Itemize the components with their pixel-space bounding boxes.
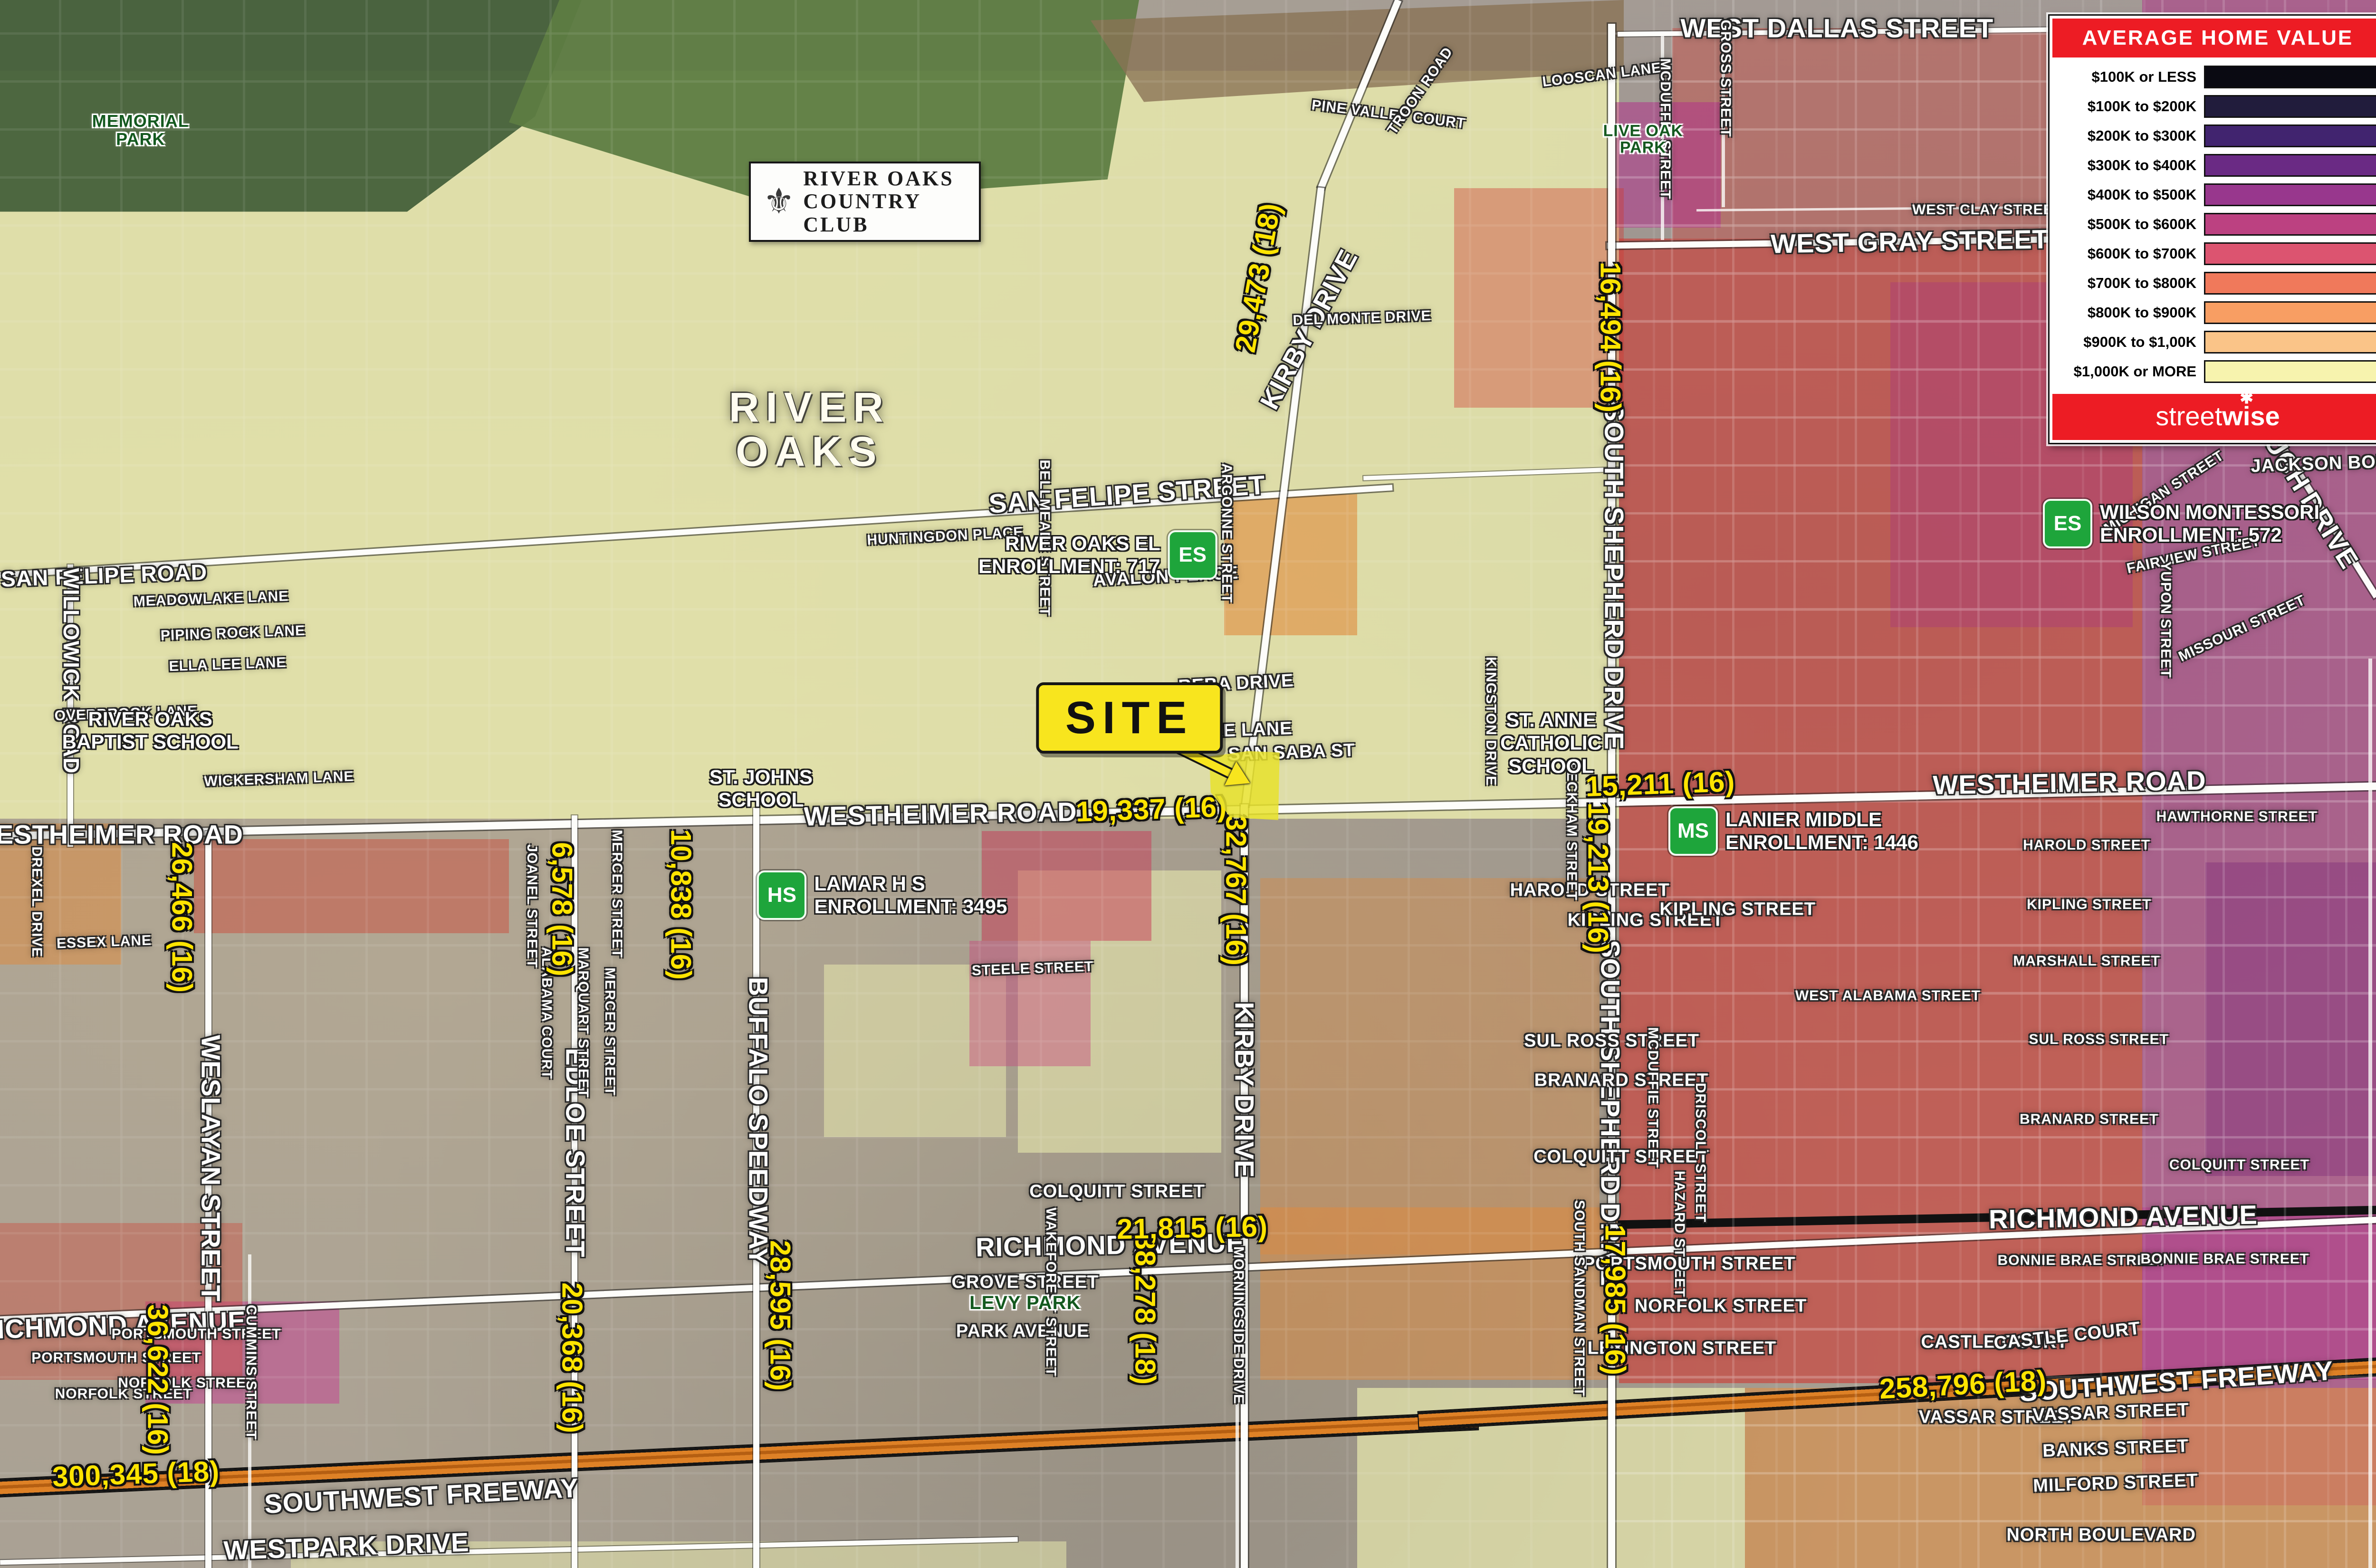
- street-label: HAWTHORNE STREET: [2156, 809, 2318, 825]
- street-label: HAZARD STREET: [1671, 1171, 1687, 1297]
- school-text: RIVER OAKS ELENROLLMENT: 717: [978, 532, 1160, 578]
- school-label: RIVER OAKS ELENROLLMENT: 717ES: [978, 530, 1217, 580]
- street-label: WEST GRAY STREET: [1771, 224, 2049, 259]
- legend-row: $100K to $200K: [2054, 92, 2376, 121]
- traffic-count: 19,337 (16): [1075, 790, 1227, 828]
- region-pink-south-richmond-east: [2142, 1207, 2376, 1380]
- street-label: NORFOLK STREET: [1635, 1296, 1807, 1316]
- legend-row-swatch: [2204, 360, 2376, 383]
- school-text: LAMAR H SENROLLMENT: 3495: [814, 872, 1007, 918]
- legend-row-swatch: [2204, 242, 2376, 265]
- traffic-count: 16,494 (16): [1594, 262, 1627, 413]
- school-label: ESWILSON MONTESSORIENROLLMENT: 572: [2043, 499, 2319, 548]
- street-label: NORTH BOULEVARD: [2006, 1525, 2196, 1545]
- legend-row: $900K to $1,00K: [2054, 327, 2376, 357]
- legend-row: $600K to $700K: [2054, 239, 2376, 268]
- street-label: WEST ALABAMA STREET: [1795, 988, 1981, 1004]
- legend-row-swatch: [2204, 95, 2376, 118]
- school-label: ST. ANNECATHOLICSCHOOL: [1500, 709, 1602, 778]
- traffic-count: 28,595 (16): [764, 1240, 797, 1391]
- legend-row: $200K to $300K: [2054, 121, 2376, 151]
- street-label: PECKHAM STREET: [1563, 762, 1580, 900]
- legend-row-label: $1,000K or MORE: [2054, 363, 2204, 380]
- street-label: SUL ROSS STREET: [1524, 1031, 1699, 1052]
- school-text: ST. JOHNSSCHOOL: [709, 766, 813, 812]
- legend-row-label: $300K to $400K: [2054, 157, 2204, 174]
- legend-row-swatch: [2204, 183, 2376, 206]
- legend-row-swatch: [2204, 154, 2376, 177]
- street-label: MORNINGSIDE DRIVE: [1230, 1246, 1246, 1404]
- street-label: COLQUITT STREET: [2169, 1157, 2309, 1173]
- street-label: BRANARD STREET: [1534, 1070, 1709, 1090]
- school-text: RIVER OAKSBAPTIST SCHOOL: [62, 708, 239, 754]
- region-orange-avalon: [1224, 494, 1358, 635]
- legend-title: AVERAGE HOME VALUE: [2052, 19, 2376, 57]
- school-badge-es-icon: ES: [1168, 530, 1217, 580]
- street-label: WESTHEIMER ROAD: [1933, 765, 2206, 800]
- area-label-river-oaks: RIVEROAKS: [729, 386, 890, 474]
- region-orange-kirby-shepherd: [1260, 878, 1600, 1254]
- school-badge-ms-icon: MS: [1668, 806, 1718, 856]
- traffic-count: 15,211 (16): [1585, 765, 1735, 803]
- park-label-memorial-park: MEMORIALPARK: [92, 112, 189, 148]
- region-red-left-small: [194, 839, 509, 933]
- legend-row-swatch: [2204, 66, 2376, 88]
- school-label: MSLANIER MIDDLEENROLLMENT: 1446: [1668, 806, 1918, 856]
- traffic-count: 21,815 (16): [1117, 1210, 1268, 1246]
- site-callout: SITE: [1036, 682, 1223, 754]
- legend-row: $700K to $800K: [2054, 268, 2376, 298]
- legend-row-label: $600K to $700K: [2054, 245, 2204, 262]
- streetwise-map-page: WEST DALLAS STREETWEST GRAY STREETWEST C…: [0, 0, 2376, 1568]
- street-label: DRISCOLL STREET: [1692, 1082, 1708, 1222]
- street-label: MARSHALL STREET: [2013, 953, 2160, 969]
- legend-row-label: $800K to $900K: [2054, 304, 2204, 321]
- street-label: SOUTH SANDMAN STREET: [1571, 1200, 1587, 1396]
- street-label: PARK AVENUE: [956, 1321, 1090, 1341]
- legend-row: $400K to $500K: [2054, 180, 2376, 210]
- street-label: WESTHEIMER ROAD: [804, 796, 1077, 832]
- legend-row-label: $100K to $200K: [2054, 98, 2204, 115]
- legend-row: $100K or LESS: [2054, 62, 2376, 92]
- school-badge-hs-icon: HS: [757, 870, 806, 920]
- map-canvas: WEST DALLAS STREETWEST GRAY STREETWEST C…: [0, 0, 2376, 1568]
- street-label: MCDUFFIE STREET: [1645, 1027, 1661, 1168]
- street-label: HAROLD STREET: [2023, 837, 2150, 853]
- traffic-count: 20,368 (16): [556, 1282, 588, 1434]
- street-label: ARGONNE STREET: [1218, 463, 1235, 603]
- street-label: WESLAYAN STREET: [195, 1035, 226, 1302]
- street-label: SUL ROSS STREET: [2029, 1032, 2169, 1048]
- school-text: LANIER MIDDLEENROLLMENT: 1446: [1725, 808, 1918, 854]
- traffic-count: 17,985 (16): [1599, 1224, 1632, 1376]
- street-label: KIPLING STREET: [1659, 899, 1816, 920]
- road-freeway-west: [0, 1413, 1478, 1498]
- school-badge-es-icon: ES: [2043, 499, 2092, 548]
- street-label: MERCER STREET: [609, 830, 625, 958]
- park-label-levy-park: LEVY PARK: [969, 1293, 1081, 1313]
- traffic-count: 10,838 (16): [665, 829, 698, 980]
- traffic-count: 32,767 (16): [1220, 815, 1253, 966]
- street-label: ESSEX LANE: [57, 933, 152, 952]
- legend-row-swatch: [2204, 124, 2376, 147]
- street-label: KIRBY DRIVE: [1229, 1002, 1260, 1178]
- legend-row: $1,000K or MORE: [2054, 357, 2376, 386]
- street-label: BUFFALO SPEEDWAY: [743, 976, 774, 1265]
- street-label: WAKEFOREST STREET: [1043, 1208, 1059, 1377]
- street-label: MERCER STREET: [602, 968, 618, 1096]
- legend-row-swatch: [2204, 331, 2376, 354]
- street-label: COLQUITT STREET: [1533, 1147, 1709, 1167]
- legend-row-swatch: [2204, 213, 2376, 236]
- street-label: BONNIE BRAE STREET: [2140, 1251, 2309, 1267]
- school-text: WILSON MONTESSORIENROLLMENT: 572: [2100, 501, 2319, 547]
- street-label: CUMMINS STREET: [243, 1305, 259, 1440]
- street-label: WEST CLAY STREET: [1912, 202, 2062, 218]
- legend-row-swatch: [2204, 272, 2376, 295]
- street-label: PORTSMOUTH STREET: [31, 1350, 201, 1366]
- legend-row: $800K to $900K: [2054, 298, 2376, 327]
- school-label: ST. JOHNSSCHOOL: [709, 766, 813, 812]
- club-text: RIVER OAKSCOUNTRY CLUB: [803, 167, 967, 236]
- street-label: SOUTH SHEPHERD DRIVE: [1599, 404, 1629, 750]
- legend-row-label: $900K to $1,00K: [2054, 334, 2204, 351]
- street-label: JOANEL STREET: [524, 844, 540, 968]
- street-label: KINGSTON DRIVE: [1483, 657, 1499, 786]
- region-orange-richmond-center: [1260, 1207, 1619, 1380]
- legend-rows: $100K or LESS$100K to $200K$200K to $300…: [2050, 60, 2376, 391]
- street-label: GROSS STREET: [1717, 19, 1734, 137]
- traffic-count: 19,213 (16): [1582, 803, 1615, 954]
- street-label: COLQUITT STREET: [1029, 1182, 1205, 1202]
- legend-row-label: $700K to $800K: [2054, 275, 2204, 292]
- school-label: RIVER OAKSBAPTIST SCHOOL: [62, 708, 239, 754]
- legend-row-label: $100K or LESS: [2054, 68, 2204, 86]
- legend-row-label: $400K to $500K: [2054, 186, 2204, 203]
- street-label: KIPLING STREET: [2027, 897, 2151, 913]
- river-oaks-country-club-label: ⚜RIVER OAKSCOUNTRY CLUB: [749, 162, 981, 242]
- street-label: GROVE STREET: [951, 1272, 1099, 1293]
- traffic-count: 6,578 (16): [546, 842, 579, 977]
- legend-average-home-value: AVERAGE HOME VALUE $100K or LESS$100K to…: [2048, 14, 2376, 444]
- traffic-count: 36,622 (16): [141, 1304, 174, 1455]
- traffic-count: 38,278 (18): [1129, 1234, 1161, 1385]
- legend-row-label: $200K to $300K: [2054, 127, 2204, 144]
- street-label: BRANARD STREET: [2020, 1111, 2158, 1128]
- road-east-edge-road: [2368, 659, 2372, 1568]
- street-label: NORFOLK STREET: [118, 1375, 255, 1391]
- legend-row-label: $500K to $600K: [2054, 216, 2204, 233]
- region-purple-mid-right: [2205, 862, 2376, 1176]
- legend-row: $300K to $400K: [2054, 151, 2376, 180]
- legend-row: $500K to $600K: [2054, 210, 2376, 239]
- brand-logo: streetwi✱se: [2052, 394, 2376, 440]
- school-text: ST. ANNECATHOLICSCHOOL: [1500, 709, 1602, 778]
- street-label: DREXEL DRIVE: [29, 846, 45, 957]
- traffic-count: 300,345 (18): [51, 1454, 220, 1493]
- street-label: WESTHEIMER ROAD: [0, 819, 243, 850]
- park-label-live-oak-park: LIVE OAKPARK: [1603, 123, 1684, 156]
- club-crest-icon: ⚜: [763, 181, 795, 222]
- street-label: YUPON STREET: [2157, 561, 2174, 678]
- street-label: RICHMOND AVENUE: [1988, 1199, 2258, 1234]
- traffic-count: 26,466 (16): [165, 842, 198, 993]
- school-label: HSLAMAR H SENROLLMENT: 3495: [757, 870, 1007, 920]
- legend-row-swatch: [2204, 301, 2376, 324]
